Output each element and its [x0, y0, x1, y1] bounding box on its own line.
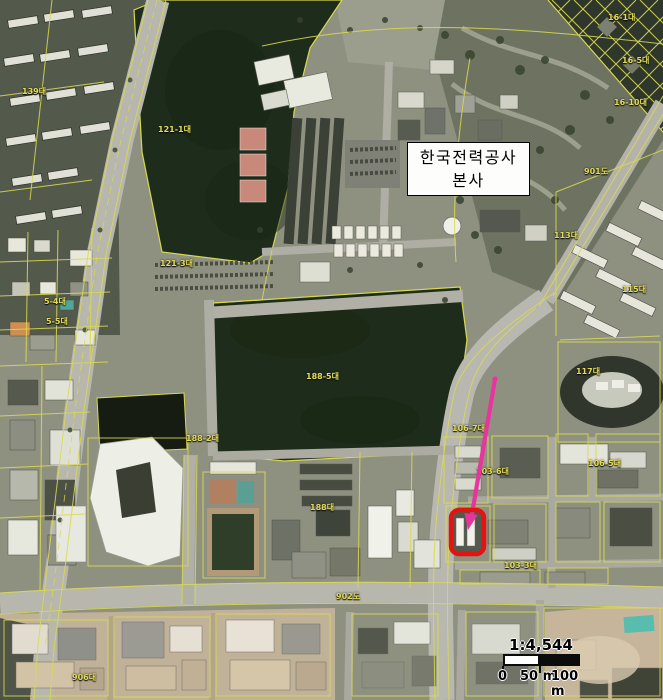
kepco-hq-label-line1: 한국전력공사 [420, 146, 517, 169]
scale-segment-dark [540, 654, 580, 666]
scale-bar: 1:4,544 0 50 m 100 m [489, 636, 593, 688]
map-viewport[interactable]: 139대121-1대121-3대5-4대5-5대188-5대188-2대188대… [0, 0, 663, 700]
scale-segment-light [503, 654, 540, 666]
satellite-basemap [0, 0, 663, 700]
kepco-hq-label-line2: 본사 [452, 169, 484, 192]
scale-tick-0: 0 [498, 669, 507, 684]
scale-ratio: 1:4,544 [489, 636, 593, 654]
scale-tick-100: 100 m [551, 669, 593, 699]
scale-bar-graphic [503, 654, 580, 666]
kepco-hq-label: 한국전력공사 본사 [407, 142, 530, 196]
